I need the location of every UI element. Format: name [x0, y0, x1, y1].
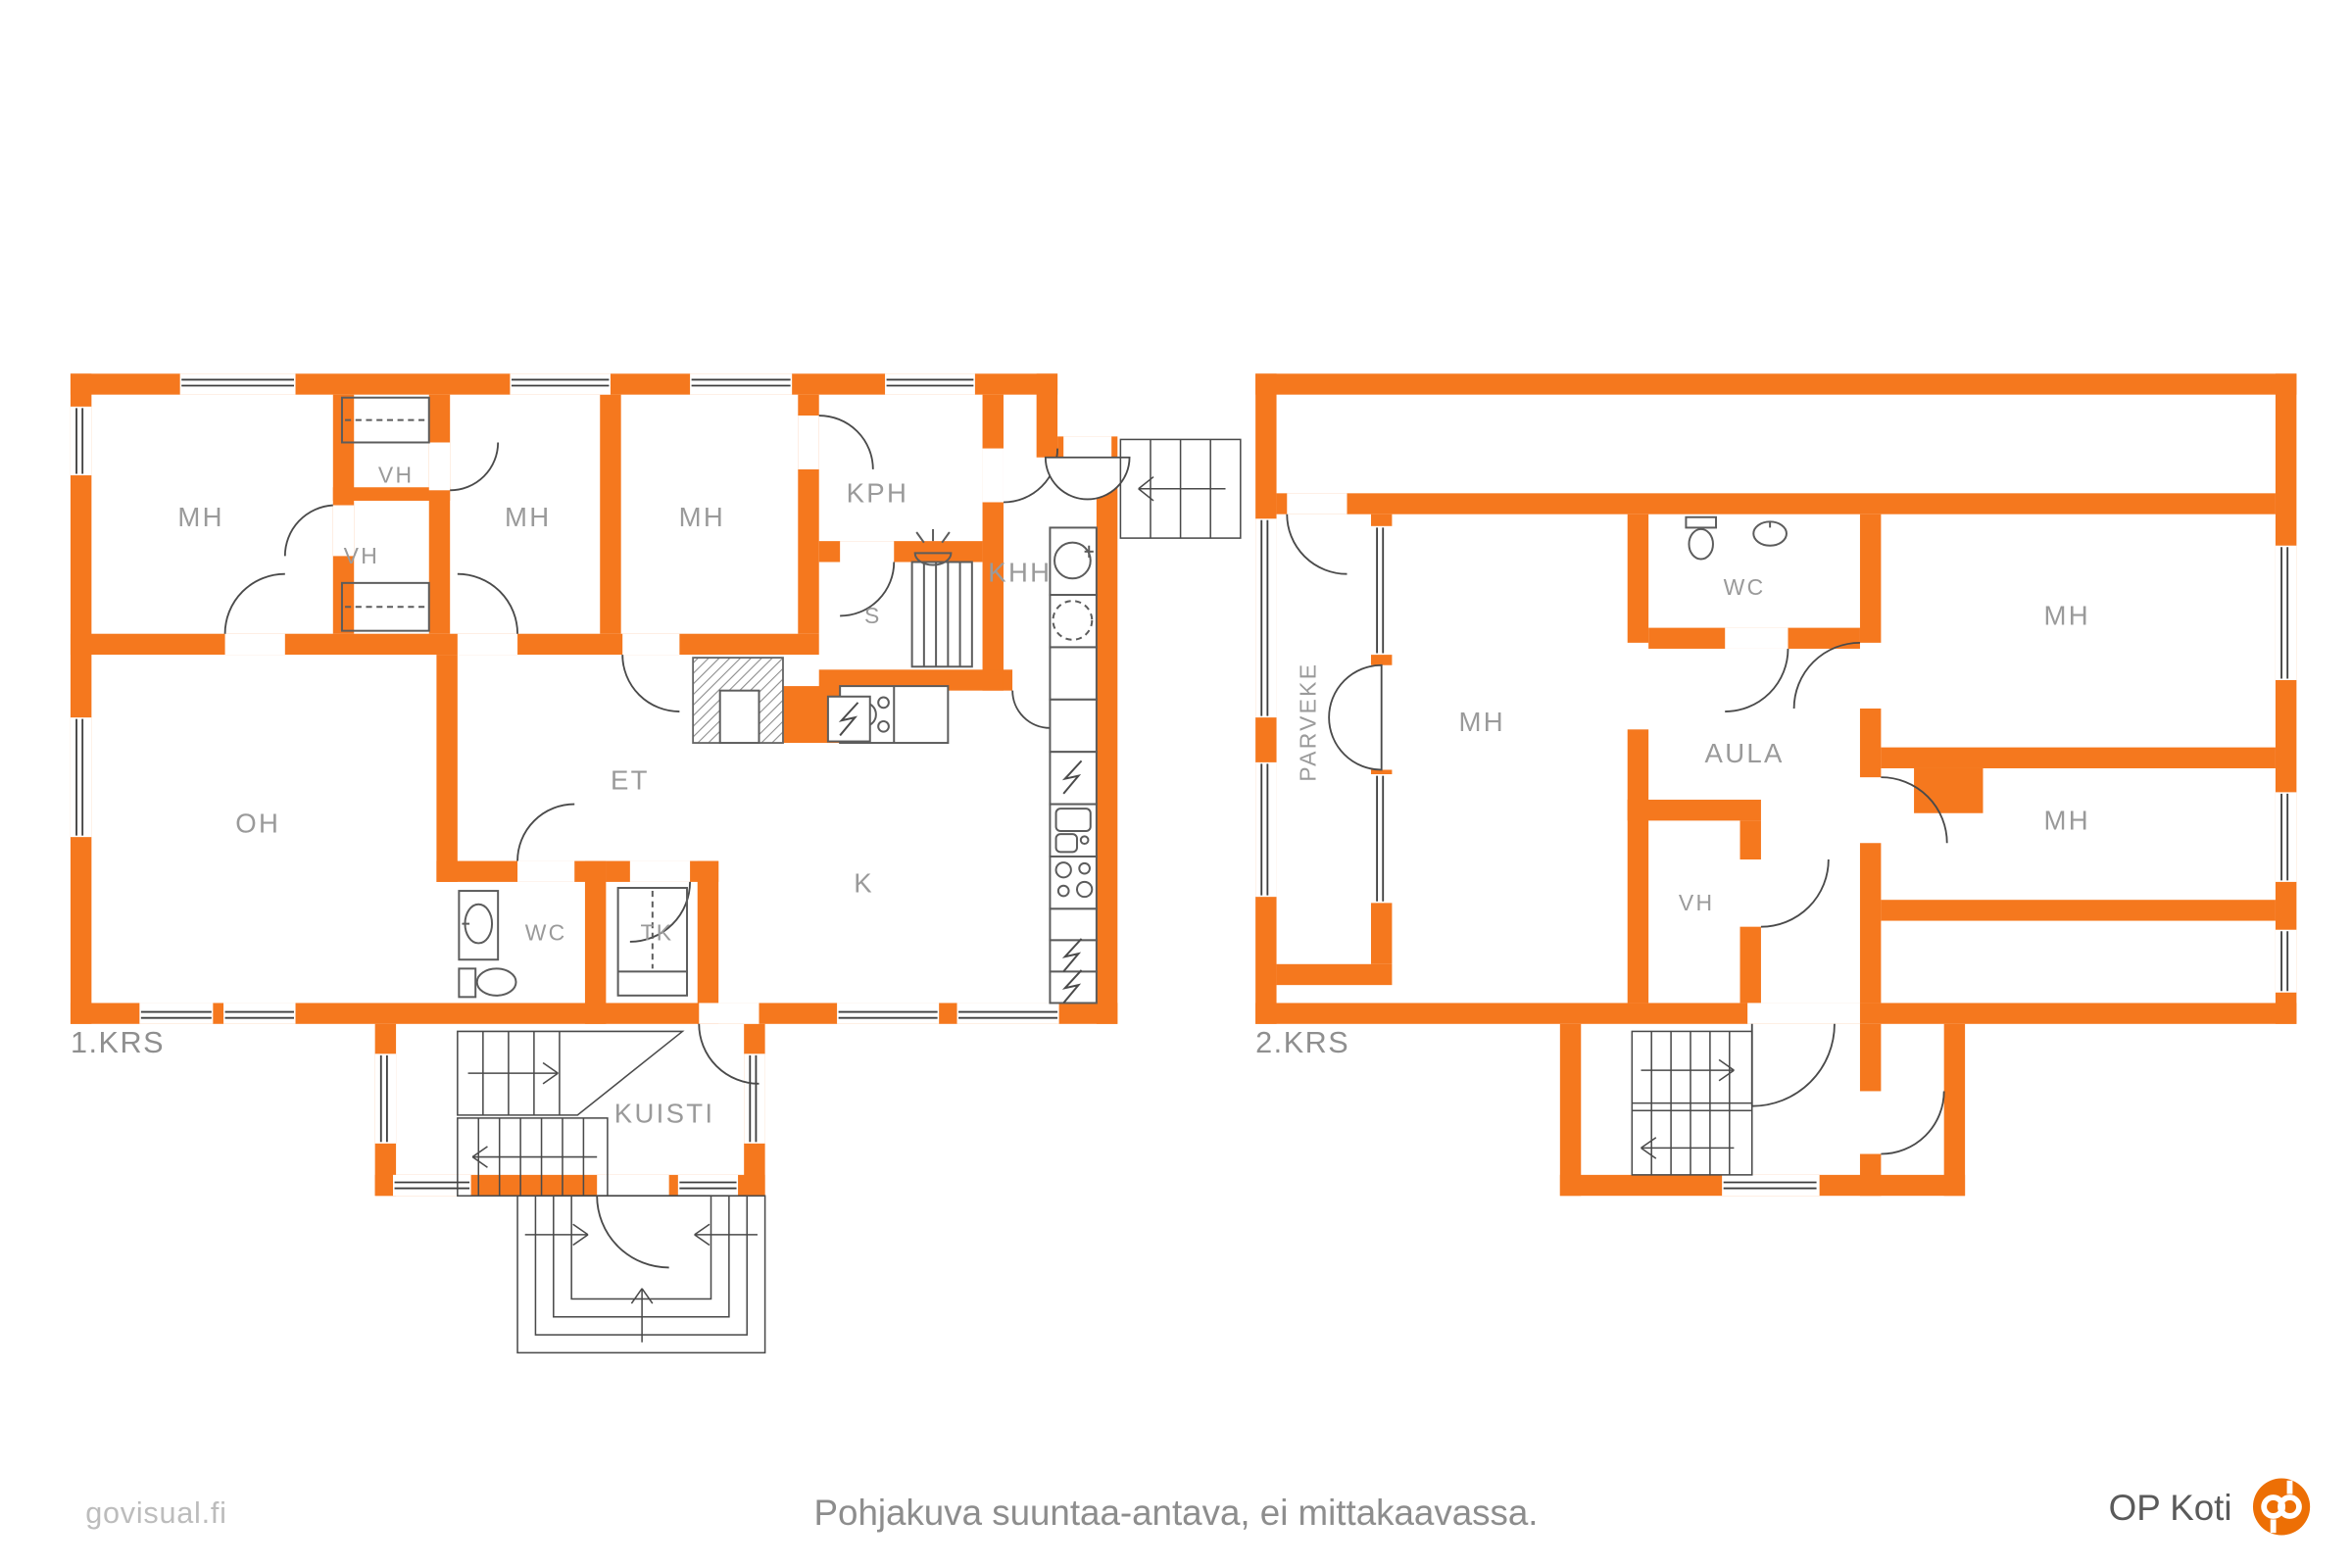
room-label-vh: VH	[1679, 890, 1714, 915]
door-swing	[1752, 1024, 1835, 1106]
washbasin-icon	[459, 891, 498, 959]
window	[1255, 518, 1276, 717]
window	[71, 407, 91, 475]
floor2-plan: PARVEKE MH WC AULA MH MH VH 2.KRS	[1255, 373, 2296, 1196]
entry-steps	[1120, 439, 1240, 538]
door-swing	[1012, 691, 1050, 728]
room-label-wc: WC	[1724, 574, 1766, 600]
window	[180, 373, 296, 394]
window	[690, 373, 792, 394]
floor2-windows	[1255, 518, 2296, 1196]
door-swing	[285, 506, 333, 557]
room-label-parveke: PARVEKE	[1295, 662, 1320, 782]
floor1-plan: MH VH VH MH MH KPH KHH S OH ET WC TK K K…	[71, 373, 1241, 1352]
window	[223, 1003, 295, 1023]
toilet-icon	[459, 968, 515, 997]
toilet-icon	[1686, 517, 1716, 560]
balcony-window	[1371, 774, 1392, 903]
window	[678, 1175, 738, 1196]
floor1-door-gaps	[225, 416, 1112, 1196]
porch-steps	[517, 1196, 765, 1352]
room-label-s: S	[864, 603, 882, 628]
door-swing	[819, 416, 873, 469]
room-label-mh: MH	[679, 502, 725, 532]
window	[837, 1003, 939, 1023]
balcony-window	[1371, 526, 1392, 655]
room-label-tk: TK	[640, 919, 673, 945]
window	[885, 373, 975, 394]
floor2-fixtures	[1632, 517, 1787, 1175]
window	[139, 1003, 213, 1023]
door-swing	[450, 442, 498, 490]
room-label-kph: KPH	[847, 478, 909, 509]
floor1-windows	[71, 373, 1059, 1196]
room-label-khh: KHH	[988, 557, 1052, 587]
floor2-walls	[1255, 373, 2296, 1196]
floor1-labels: MH VH VH MH MH KPH KHH S OH ET WC TK K K…	[71, 463, 1052, 1129]
electrical-panel-icon	[828, 697, 870, 742]
room-label-mh: MH	[505, 502, 551, 532]
floor1-label: 1.KRS	[71, 1026, 165, 1059]
watermark-text: govisual.fi	[85, 1496, 227, 1530]
window	[1722, 1175, 1819, 1196]
room-label-mh: MH	[2043, 601, 2089, 631]
op-logo-icon	[2253, 1478, 2310, 1535]
room-label-kuisti: KUISTI	[614, 1099, 715, 1129]
door-swing	[1287, 514, 1347, 574]
door-swing	[458, 574, 517, 634]
window	[2276, 546, 2296, 680]
door-swing	[1761, 859, 1829, 927]
door-swing	[1881, 1091, 1943, 1153]
op-koti-logo: OP Koti	[2109, 1478, 2310, 1535]
room-label-aula: AULA	[1705, 738, 1785, 768]
room-label-mh: MH	[2043, 806, 2089, 836]
door-swing	[225, 574, 285, 634]
op-koti-text: OP Koti	[2109, 1488, 2232, 1528]
floor2-label: 2.KRS	[1255, 1026, 1349, 1059]
balcony-door-swing	[1329, 665, 1382, 770]
floor1-stairs	[458, 439, 1241, 1352]
window	[393, 1175, 471, 1196]
interior-stairs	[1632, 1031, 1751, 1174]
door-swing	[597, 1196, 668, 1267]
wardrobe	[342, 398, 429, 443]
room-label-vh: VH	[344, 543, 379, 568]
window	[510, 373, 611, 394]
kitchen-appliance-column	[1050, 527, 1096, 1003]
window	[71, 717, 91, 837]
door-swing	[1725, 649, 1788, 711]
window	[957, 1003, 1059, 1023]
fireplace	[693, 658, 783, 743]
wardrobe	[342, 583, 429, 631]
door-swing	[517, 805, 574, 861]
window	[1255, 762, 1276, 897]
window	[375, 1053, 396, 1144]
door-swing	[622, 655, 679, 711]
floorplan-canvas: MH VH VH MH MH KPH KHH S OH ET WC TK K K…	[0, 0, 2352, 1568]
room-label-wc: WC	[525, 919, 567, 945]
window	[2276, 930, 2296, 993]
footer: govisual.fi Pohjakuva suuntaa-antava, ei…	[85, 1478, 2310, 1535]
sauna-bench	[912, 562, 972, 666]
disclaimer-text: Pohjakuva suuntaa-antava, ei mittakaavas…	[814, 1493, 1539, 1533]
door-swing	[1794, 643, 1860, 709]
window	[2276, 792, 2296, 882]
washbasin-icon	[1753, 521, 1787, 545]
room-label-mh: MH	[1459, 707, 1505, 737]
floor1-walls	[71, 373, 1117, 1196]
room-label-oh: OH	[235, 808, 280, 839]
room-label-vh: VH	[378, 463, 414, 488]
room-label-et: ET	[611, 764, 650, 795]
room-label-k: K	[854, 868, 874, 899]
window	[744, 1053, 764, 1144]
room-label-mh: MH	[177, 502, 223, 532]
